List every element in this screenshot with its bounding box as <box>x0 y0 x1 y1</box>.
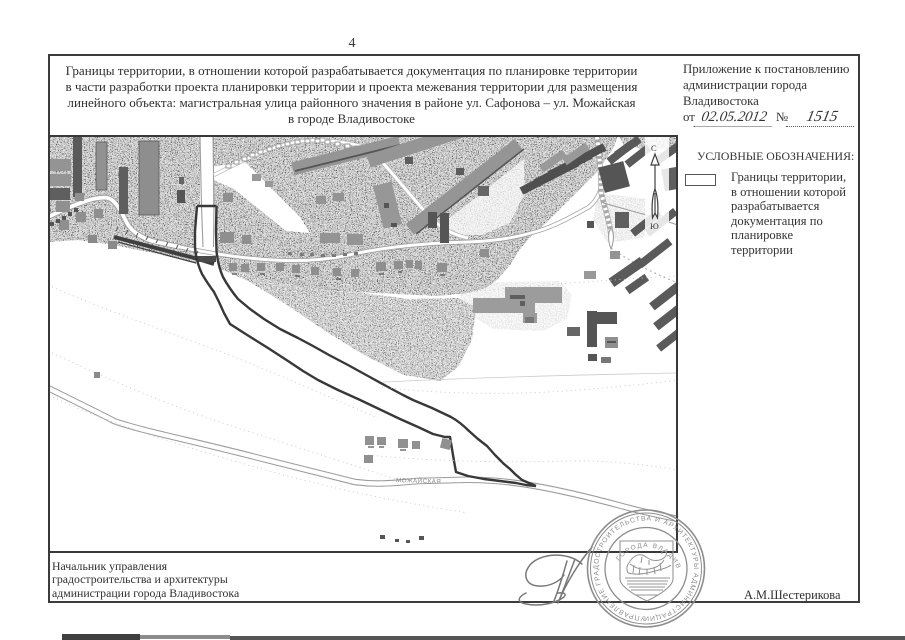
svg-text:С: С <box>651 143 657 153</box>
svg-text:Ю: Ю <box>650 221 659 231</box>
svg-text:МОЖАЙСКАЯ: МОЖАЙСКАЯ <box>396 476 442 486</box>
